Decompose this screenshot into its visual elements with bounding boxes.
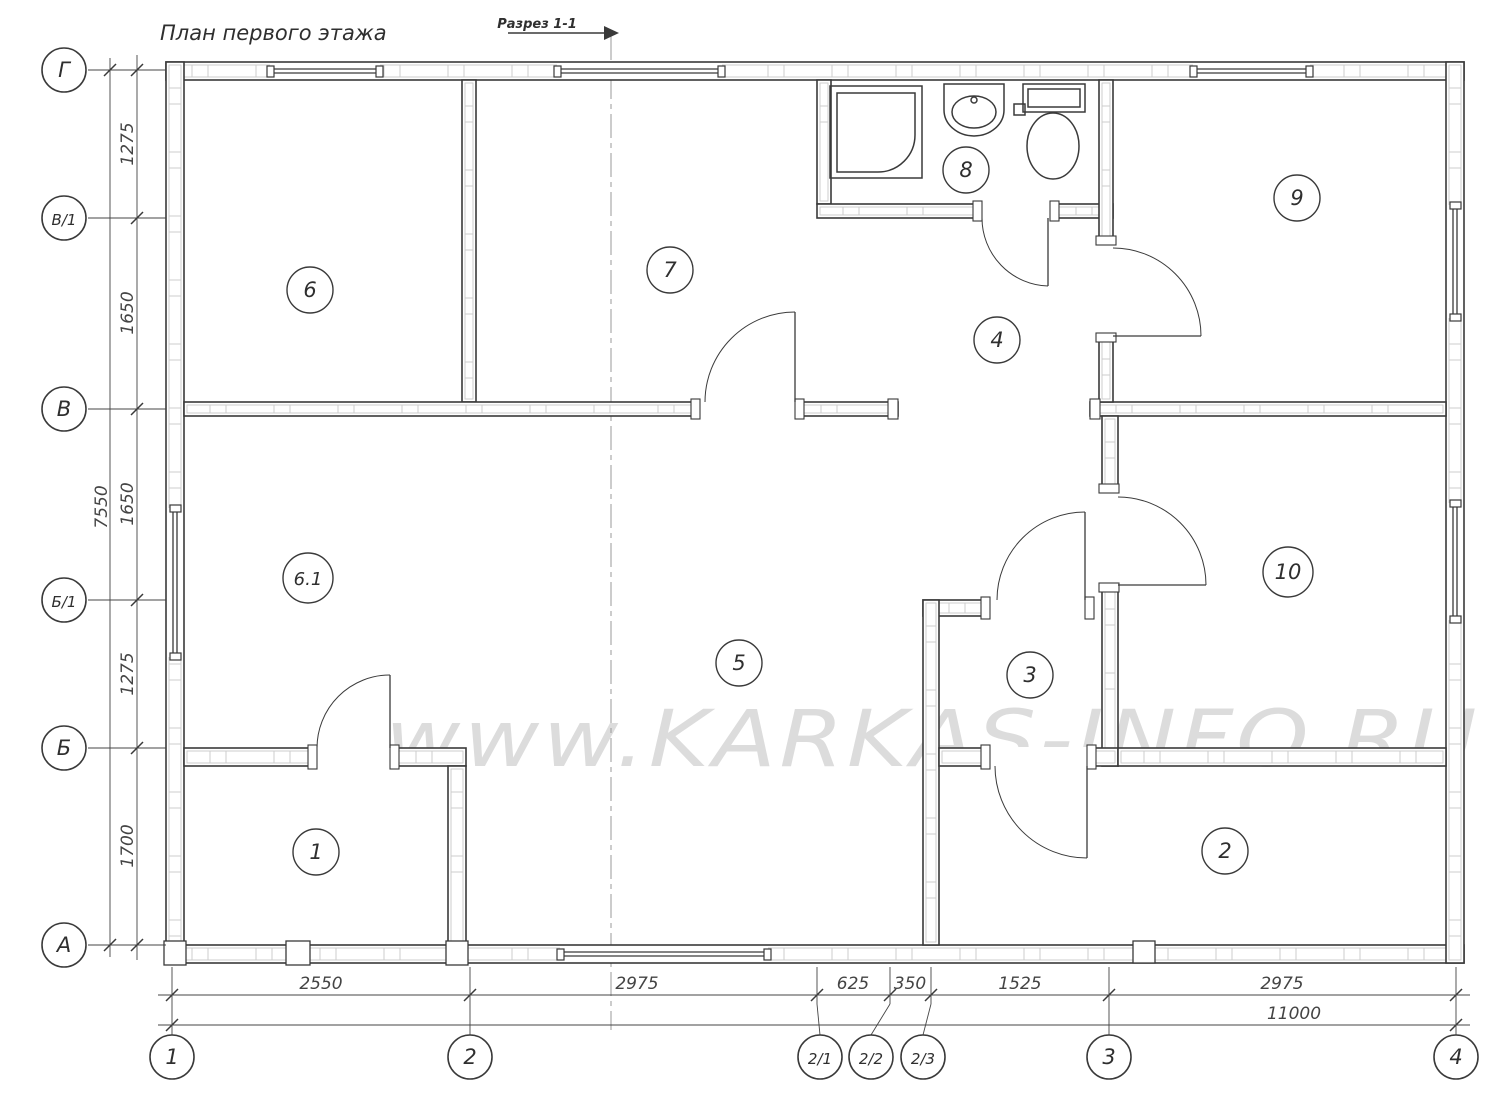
wall-segment: [817, 204, 982, 218]
door-jamb: [1099, 484, 1119, 493]
door-opening: [317, 747, 390, 767]
door-opening: [1101, 493, 1119, 583]
walls-layer: [164, 62, 1464, 965]
window-opening: [270, 63, 380, 79]
axis-label: 4: [1449, 1045, 1462, 1069]
window-cap: [718, 66, 725, 77]
dimensions-layer: 1275165016501275170025502975625350152529…: [88, 55, 1470, 1031]
window-cap: [764, 949, 771, 960]
axis-label: 3: [1102, 1045, 1115, 1069]
dimension-value: 350: [894, 974, 926, 994]
wall-segment: [1102, 416, 1118, 493]
toilet-bowl: [1027, 113, 1079, 179]
door-swing-arc: [997, 512, 1085, 600]
axis-label: А: [55, 933, 71, 957]
floor-plan-page: www.KARKAS-INFO.RU План первого этажа Ра…: [0, 0, 1500, 1108]
axis-label: 2: [463, 1045, 476, 1069]
door-jamb: [1085, 597, 1094, 619]
window-cap: [1450, 314, 1461, 321]
window-cap: [170, 653, 181, 660]
dimension-value: 1650: [118, 482, 138, 525]
sink-faucet: [971, 97, 977, 103]
passage-cap: [1090, 399, 1100, 419]
window-cap: [1190, 66, 1197, 77]
shower-tray-inner: [837, 93, 915, 172]
door-jamb: [691, 399, 700, 419]
door-swing-arc: [982, 218, 1048, 286]
room-number: 9: [1290, 186, 1303, 210]
dimension-overall-bottom: 11000: [1267, 1004, 1321, 1024]
dimension-value: 1275: [118, 122, 138, 165]
room-number: 5: [732, 651, 745, 675]
axes-layer: ГВ/1ВБ/1БА122/12/22/334: [42, 48, 1478, 1079]
window-cap: [1450, 500, 1461, 507]
wall-segment: [462, 80, 476, 402]
wall-segment: [795, 402, 898, 416]
wall-segment: [1099, 80, 1113, 245]
door-swing-arc: [317, 675, 390, 748]
room-number: 7: [663, 258, 677, 282]
window-cap: [267, 66, 274, 77]
window-opening: [560, 946, 768, 962]
axis-label: В: [57, 397, 71, 421]
dimension-value: 1650: [118, 291, 138, 334]
axis-label: 1: [165, 1045, 178, 1069]
door-jamb: [390, 745, 399, 769]
wall-segment: [1102, 583, 1118, 766]
door-jamb: [981, 745, 990, 769]
door-swing-arc: [705, 312, 795, 402]
dimension-value: 625: [837, 974, 869, 994]
door-swing-arc: [1113, 248, 1201, 336]
wall-segment: [184, 402, 700, 416]
wall-segment: [923, 600, 939, 945]
wall-segment: [817, 80, 831, 204]
door-jamb: [795, 399, 804, 419]
room-number: 2: [1218, 839, 1231, 863]
page-title: План первого этажа: [160, 21, 387, 45]
wall-segment: [1090, 402, 1446, 416]
dimension-value: 1275: [118, 652, 138, 695]
post-block: [446, 941, 468, 965]
post-block: [286, 941, 310, 965]
room-number: 1: [309, 840, 322, 864]
axis-label: 2/2: [859, 1050, 883, 1068]
door-jamb: [1096, 236, 1116, 245]
door-jamb: [981, 597, 990, 619]
door-opening: [700, 401, 795, 417]
extension-line-bend: [923, 1004, 931, 1035]
room-number: 6.1: [294, 569, 323, 590]
door-jamb: [1087, 745, 1096, 769]
room-number: 4: [990, 328, 1003, 352]
openings-layer: [167, 63, 1463, 962]
wall-segment: [1099, 333, 1113, 402]
window-cap: [1450, 616, 1461, 623]
shower-tray: [830, 86, 922, 178]
extension-line-bend: [871, 1004, 890, 1035]
window-cap: [376, 66, 383, 77]
dimension-value: 2550: [299, 974, 342, 994]
window-cap: [554, 66, 561, 77]
door-jamb: [308, 745, 317, 769]
window-opening: [1193, 63, 1310, 79]
post-block: [1133, 941, 1155, 963]
window-cap: [1306, 66, 1313, 77]
window-cap: [557, 949, 564, 960]
axis-label: 2/1: [808, 1050, 832, 1068]
dimension-value: 2975: [615, 974, 658, 994]
axis-label: 2/3: [911, 1050, 935, 1068]
door-opening: [982, 203, 1050, 219]
door-jamb: [1050, 201, 1059, 221]
window-opening: [1447, 503, 1463, 620]
extension-line-bend: [817, 1004, 820, 1035]
dimension-overall-left: 7550: [92, 485, 112, 528]
section-mark-label: Разрез 1-1: [497, 17, 577, 32]
dimension-value: 1700: [118, 824, 138, 867]
door-jamb: [1099, 583, 1119, 592]
dimension-value: 2975: [1260, 974, 1303, 994]
door-opening: [990, 747, 1087, 767]
door-swing-arc: [1118, 497, 1206, 585]
door-jamb: [973, 201, 982, 221]
door-opening: [1098, 245, 1114, 333]
axis-label: Б/1: [52, 593, 77, 611]
room-number: 10: [1275, 560, 1302, 584]
sink-basin: [952, 96, 996, 128]
window-opening: [167, 508, 183, 657]
section-line: [508, 26, 619, 1030]
window-cap: [170, 505, 181, 512]
floor-plan-canvas: www.KARKAS-INFO.RU План первого этажа Ра…: [0, 0, 1500, 1108]
axis-label: Б: [57, 736, 71, 760]
window-opening: [557, 63, 722, 79]
passage-cap: [888, 399, 898, 419]
post-block: [164, 941, 186, 965]
room-number: 8: [959, 158, 972, 182]
door-jamb: [1096, 333, 1116, 342]
door-opening: [990, 599, 1085, 617]
dimension-value: 1525: [998, 974, 1041, 994]
toilet-tank: [1023, 84, 1085, 112]
room-number: 3: [1023, 663, 1036, 687]
window-cap: [1450, 202, 1461, 209]
room-number: 6: [303, 278, 316, 302]
axis-label: В/1: [52, 211, 77, 229]
window-opening: [1447, 205, 1463, 318]
